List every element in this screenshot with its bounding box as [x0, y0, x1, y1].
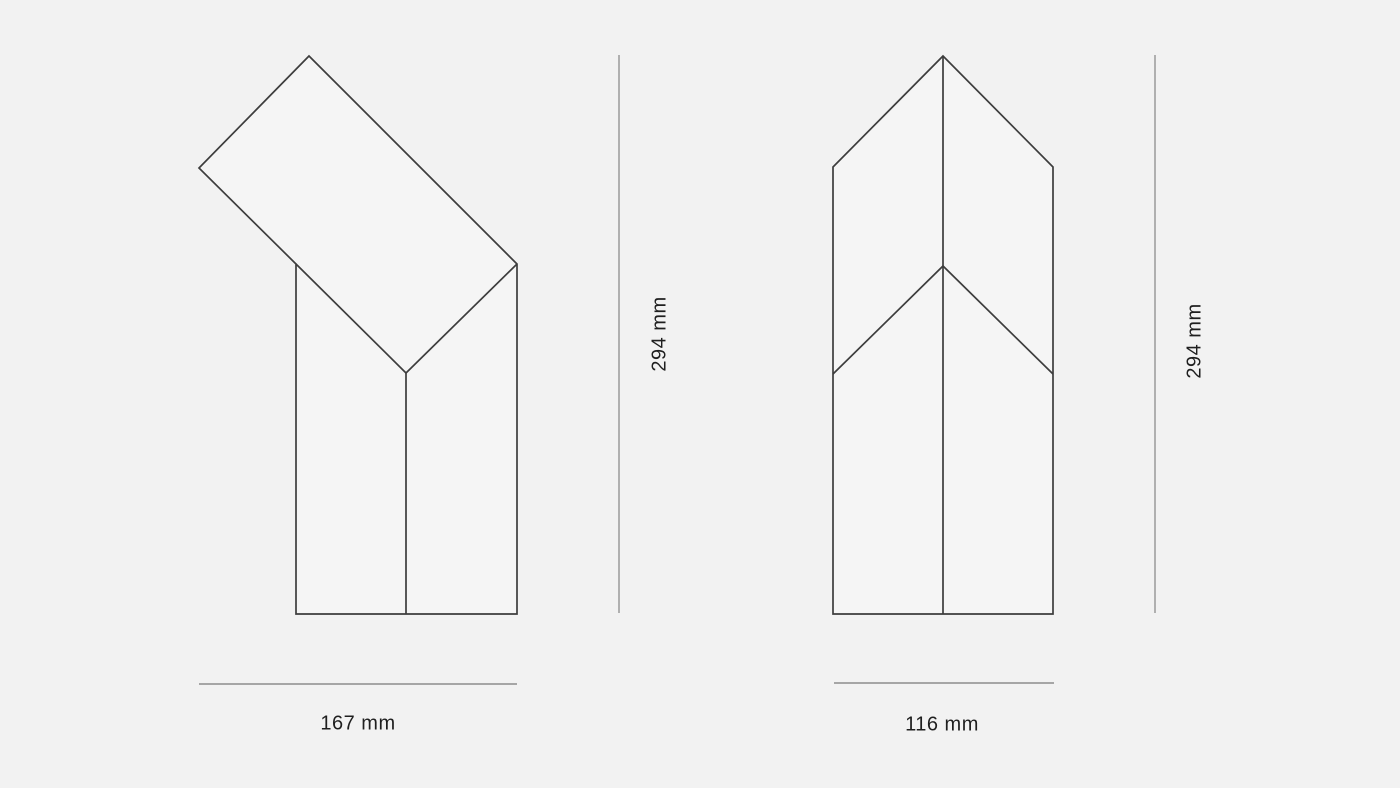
technical-drawing-canvas: 294 mm 294 mm 167 mm 116 mm [0, 0, 1400, 788]
drawing-svg [0, 0, 1400, 788]
front-view-height-label: 294 mm [1184, 303, 1207, 378]
side-view-height-label: 294 mm [649, 296, 672, 371]
side-view-width-label: 167 mm [320, 713, 395, 736]
side-view-silhouette [199, 56, 517, 614]
front-view-width-label: 116 mm [905, 714, 979, 737]
